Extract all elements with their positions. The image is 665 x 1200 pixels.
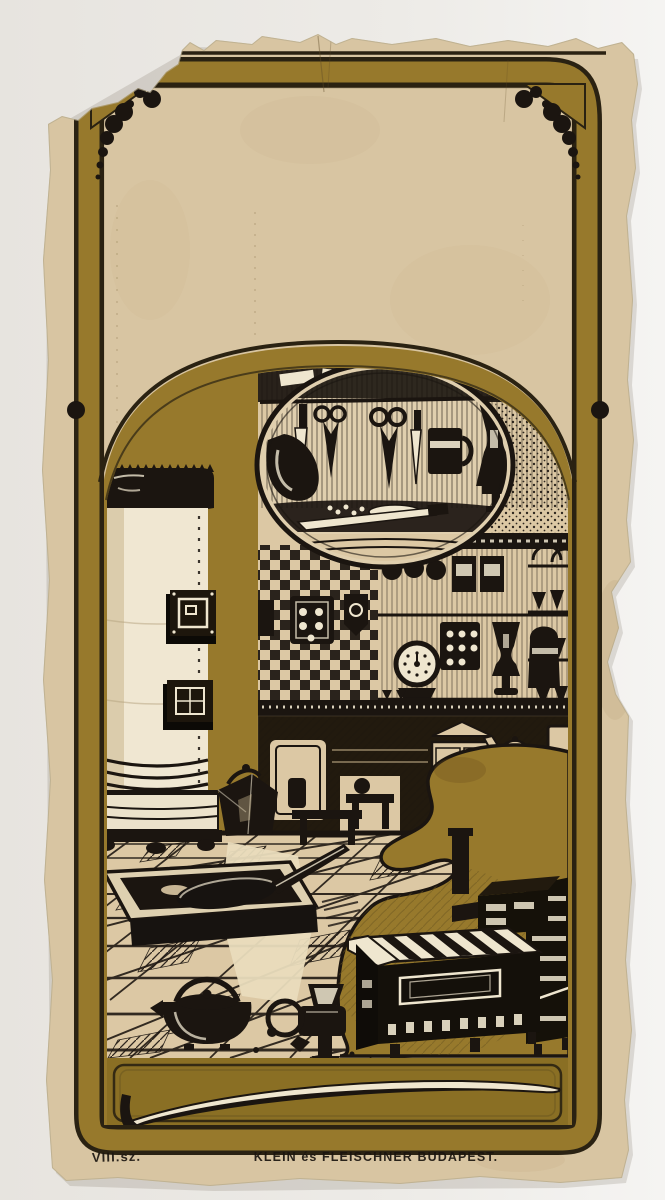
kitchen-illustration: [94, 360, 578, 1133]
scan-stage: VIII.sz. KLEIN és FLEISCHNER BUDAPEST.: [0, 0, 665, 1200]
arch-junction-dot-right: [591, 401, 609, 419]
tile-stove: [94, 464, 222, 854]
stove-pipe: [452, 832, 469, 894]
hanging-box-edge: [258, 600, 274, 636]
stove-cap: [100, 468, 214, 513]
arch-junction-dot-left: [67, 401, 85, 419]
scanned-card-photo: VIII.sz. KLEIN és FLEISCHNER BUDAPEST.: [0, 0, 665, 1200]
hanging-box: [290, 596, 334, 644]
caption-maker: KLEIN és FLEISCHNER BUDAPEST.: [254, 1150, 498, 1164]
checkerboard-wall: [258, 545, 378, 702]
card: VIII.sz. KLEIN és FLEISCHNER BUDAPEST.: [30, 25, 650, 1195]
grid-jar: [440, 622, 480, 670]
ornament-panel: [106, 1058, 568, 1133]
stove-door-upper: [166, 590, 216, 644]
dresser-niche: [270, 740, 326, 820]
jug: [528, 627, 560, 689]
caption-series-number: VIII.sz.: [92, 1149, 142, 1165]
scissors-vignette: [257, 363, 514, 567]
stove-door-lower: [163, 680, 213, 730]
